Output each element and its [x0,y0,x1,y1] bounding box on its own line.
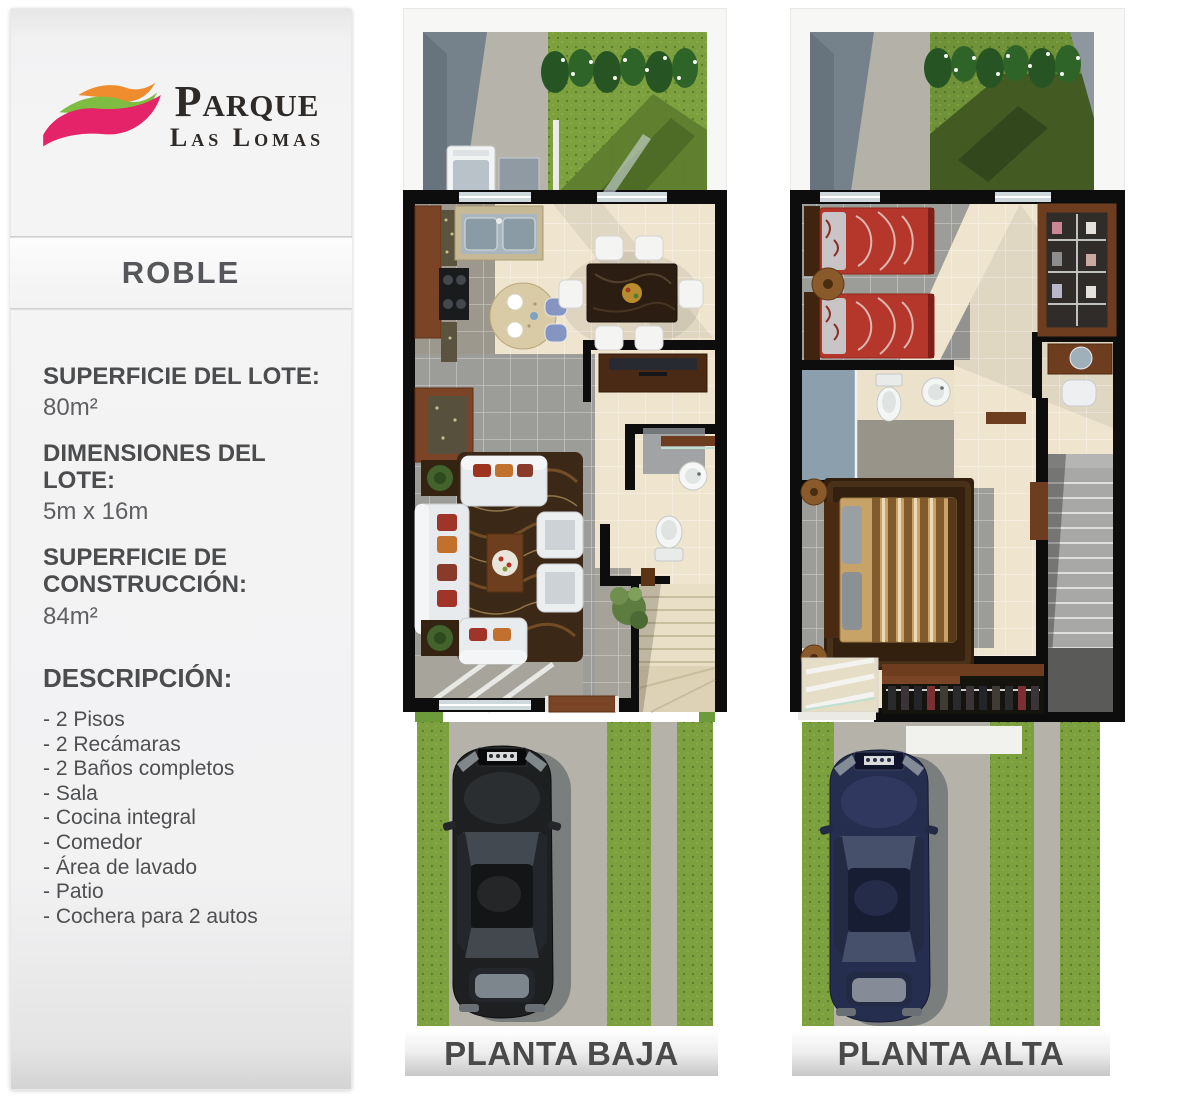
info-panel: Parque Las Lomas ROBLE SUPERFICIE DEL LO… [10,8,352,1090]
driveway [417,722,713,1026]
tv-console [599,354,707,392]
description-item: - 2 Baños completos [43,757,333,782]
description-item: - Área de lavado [43,856,333,881]
car-top-view [819,750,948,1026]
armchair [537,564,583,612]
coffee-table [487,534,523,592]
dresser [1030,482,1048,540]
description-item: - 2 Pisos [43,708,333,733]
nightstand [801,479,827,505]
bathroom [802,370,954,480]
bathroom-sink [922,378,950,406]
stairs [639,568,715,712]
description-item: - Cochera para 2 autos [43,905,333,930]
loveseat-bottom [459,618,527,664]
patio-post [553,120,559,198]
closet [1042,208,1112,332]
twin-bed-2 [804,292,934,360]
window [798,658,878,720]
patio [810,32,1094,198]
description-item: - Sala [43,782,333,807]
toilet [655,516,683,561]
entry-door [545,696,619,712]
floor-plan-planta-baja [403,8,727,1030]
shower [802,370,856,480]
sofa [415,504,469,634]
spec-label-construccion: SUPERFICIE DE CONSTRUCCIÓN: [43,544,325,599]
brand-name: Parque Las Lomas [170,81,324,153]
front-garden [699,712,715,722]
side-table [421,460,459,496]
vanity-shelf [661,436,715,446]
armchair [537,512,583,558]
car-top-view [442,746,571,1022]
description-item: - 2 Recámaras [43,733,333,758]
window-bedroom [995,192,1051,202]
plan-label-text: PLANTA ALTA [838,1035,1065,1073]
laundry-sink [499,158,539,192]
driveway [802,722,1100,1026]
toilet [876,374,902,421]
front-garden [415,712,443,722]
kitchen-sink [455,206,543,260]
loveseat-top [461,456,547,506]
model-name: ROBLE [10,238,352,308]
plan-label-text: PLANTA BAJA [444,1035,679,1073]
description-item: - Cocina integral [43,806,333,831]
description-item: - Patio [43,880,333,905]
patio [423,32,707,202]
window-kitchen [459,192,531,202]
master-bed [824,498,956,642]
window-porch [439,700,531,710]
description-heading: DESCRIPCIÓN: [43,663,333,694]
brand-logo: Parque Las Lomas [10,80,352,154]
spec-value-lote: 80m² [43,395,325,421]
spec-label-dimensiones: DIMENSIONES DEL LOTE: [43,440,325,495]
stool [545,324,567,342]
twin-bed-1 [804,206,934,276]
floor-plan-planta-alta [790,8,1125,1030]
desk-chair [1062,380,1096,406]
description-item: - Comedor [43,831,333,856]
plan-label-planta-alta: PLANTA ALTA [792,1032,1110,1076]
spec-value-dimensiones: 5m x 16m [43,499,325,525]
wardrobe-closet [882,664,1044,714]
spec-value-construccion: 84m² [43,604,325,630]
stove [439,268,469,320]
divider [10,308,352,311]
nightstand [812,268,844,300]
side-table [421,620,459,656]
brand-name-line2: Las Lomas [170,123,324,153]
spec-label-lote: SUPERFICIE DEL LOTE: [43,363,325,390]
specs-section: SUPERFICIE DEL LOTE: 80m² DIMENSIONES DE… [43,363,325,630]
hall-shelf [986,412,1026,424]
plan-label-planta-baja: PLANTA BAJA [405,1032,718,1076]
logo-swoosh-icon [38,80,166,154]
description-section: DESCRIPCIÓN: - 2 Pisos - 2 Recámaras - 2… [43,663,333,929]
stairs [1048,454,1113,712]
brand-name-line1: Parque [175,81,320,123]
window-bedroom [820,192,880,202]
entry-pad [906,726,1022,754]
description-list: - 2 Pisos - 2 Recámaras - 2 Baños comple… [43,708,333,929]
brochure-page: Parque Las Lomas ROBLE SUPERFICIE DEL LO… [0,0,1193,1100]
